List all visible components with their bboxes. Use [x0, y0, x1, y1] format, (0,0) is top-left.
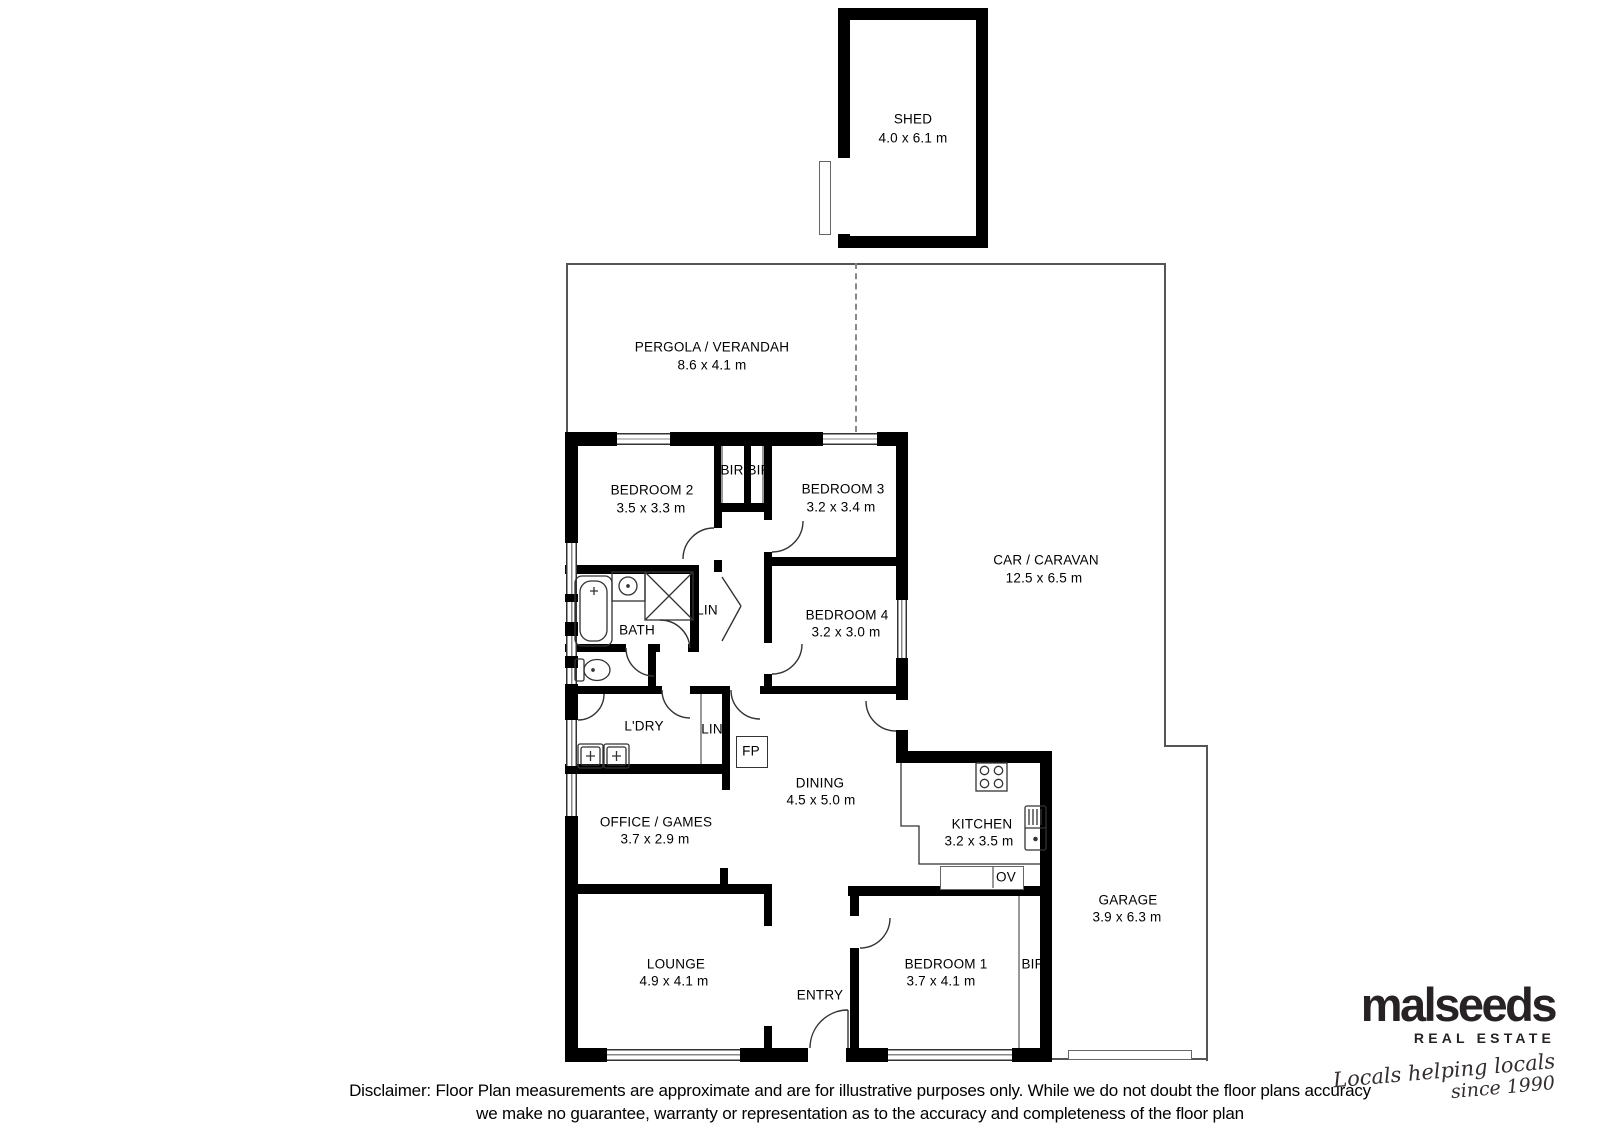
closet-label-lin-hall: LIN	[696, 603, 718, 617]
room-label-car-caravan: CAR / CARAVAN	[993, 553, 1099, 567]
kitchen-bench-line	[901, 763, 1040, 864]
laundry-exterior-door	[578, 694, 604, 720]
room-dims-office: 3.7 x 2.9 m	[621, 832, 690, 846]
bedroom3-door	[772, 521, 803, 552]
room-label-bath: BATH	[619, 623, 655, 637]
closet-label-bir-right: BIR	[747, 463, 770, 477]
room-label-bedroom4: BEDROOM 4	[806, 608, 889, 622]
room-dims-bedroom1: 3.7 x 4.1 m	[907, 974, 976, 988]
closet-label-bir-bedroom1: BIR	[1021, 957, 1044, 971]
dining-hall-door	[731, 690, 760, 719]
disclaimer-line2: we make no guarantee, warranty or repres…	[260, 1103, 1460, 1126]
room-label-lounge: LOUNGE	[647, 957, 705, 971]
linen-bifold-door	[722, 577, 741, 641]
doors-and-fixtures	[0, 0, 1600, 1134]
room-label-entry: ENTRY	[797, 988, 844, 1002]
room-dims-pergola: 8.6 x 4.1 m	[678, 358, 747, 372]
room-label-pergola: PERGOLA / VERANDAH	[635, 340, 789, 354]
label-oven: OV	[996, 870, 1016, 884]
agency-logo: malseeds REAL ESTATE Locals helping loca…	[1240, 980, 1555, 1094]
room-label-bedroom2: BEDROOM 2	[611, 483, 694, 497]
bedroom4-door	[772, 644, 802, 674]
laundry-door	[662, 690, 690, 718]
entry-front-door	[810, 1010, 848, 1048]
floor-plan: SHED 4.0 x 6.1 m PERGOLA / VERANDAH 8.6 …	[0, 0, 1600, 1134]
disclaimer-line1: Disclaimer: Floor Plan measurements are …	[260, 1080, 1460, 1103]
shower-icon	[645, 572, 693, 620]
room-dims-bedroom2: 3.5 x 3.3 m	[617, 501, 686, 515]
label-fireplace: FP	[742, 744, 760, 758]
room-dims-bedroom4: 3.2 x 3.0 m	[812, 625, 881, 639]
bath-vanity-icon	[612, 572, 645, 601]
room-label-bedroom3: BEDROOM 3	[802, 482, 885, 496]
room-dims-dining: 4.5 x 5.0 m	[787, 793, 856, 807]
room-dims-lounge: 4.9 x 4.1 m	[640, 974, 709, 988]
closet-label-lin-laundry: LIN	[701, 722, 723, 736]
agency-name: malseeds	[1240, 980, 1555, 1029]
room-label-laundry: L'DRY	[624, 719, 663, 733]
kitchen-door	[866, 701, 896, 731]
agency-division: REAL ESTATE	[1240, 1030, 1555, 1046]
room-label-garage: GARAGE	[1099, 893, 1158, 907]
bath-door	[660, 620, 690, 648]
room-dims-kitchen: 3.2 x 3.5 m	[945, 834, 1014, 848]
room-label-office: OFFICE / GAMES	[600, 815, 712, 829]
bedroom2-door	[683, 528, 714, 559]
room-dims-garage: 3.9 x 6.3 m	[1093, 910, 1162, 924]
stove-icon	[976, 763, 1007, 791]
room-label-kitchen: KITCHEN	[952, 817, 1013, 831]
kitchen-sink-icon	[1025, 806, 1046, 850]
bedroom1-door	[860, 918, 890, 948]
disclaimer: Disclaimer: Floor Plan measurements are …	[260, 1080, 1460, 1125]
room-label-shed: SHED	[894, 112, 932, 126]
room-dims-car-caravan: 12.5 x 6.5 m	[1006, 571, 1083, 585]
bathtub-icon	[575, 576, 612, 646]
room-label-dining: DINING	[796, 776, 844, 790]
room-dims-shed: 4.0 x 6.1 m	[879, 131, 948, 145]
closet-label-bir-left: BIR	[720, 463, 743, 477]
toilet-door	[626, 648, 654, 676]
room-label-bedroom1: BEDROOM 1	[905, 957, 988, 971]
room-dims-bedroom3: 3.2 x 3.4 m	[807, 500, 876, 514]
door-arcs	[578, 521, 896, 1048]
laundry-tub-icon	[578, 744, 629, 768]
toilet-icon	[575, 659, 610, 681]
